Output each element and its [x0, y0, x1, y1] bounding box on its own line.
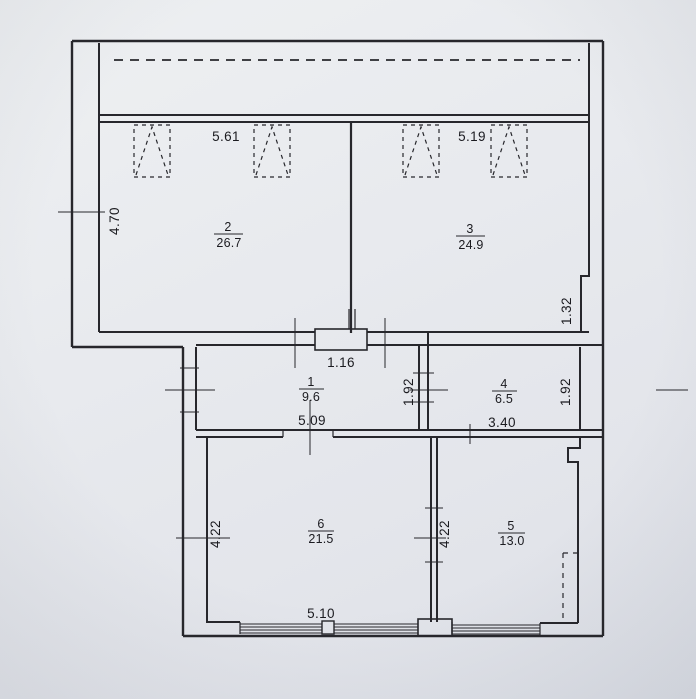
- dim-room2-height: 4.70: [107, 207, 122, 235]
- dim-room6-width: 5.10: [307, 606, 335, 621]
- dim-entry-opening: 1.16: [327, 355, 355, 370]
- room4-area: 6.5: [495, 392, 513, 406]
- room2-number: 2: [224, 220, 231, 234]
- room3-number: 3: [466, 222, 473, 236]
- room2-area: 26.7: [216, 236, 241, 250]
- dim-room3-width: 5.19: [458, 129, 486, 144]
- scanned-floorplan-page: 1 9.6 2 26.7 3 24.9 4 6.5 5 13.0 6 21.5 …: [0, 0, 696, 699]
- dim-room4-width: 3.40: [488, 415, 516, 430]
- dim-room4-height-left: 1.92: [401, 378, 416, 406]
- room5-area: 13.0: [499, 534, 524, 548]
- dim-room2-width: 5.61: [212, 129, 240, 144]
- dim-room5-height: 4.22: [437, 520, 452, 548]
- dim-room6-height: 4.22: [208, 520, 223, 548]
- room6-area: 21.5: [308, 532, 333, 546]
- floorplan-drawing: 1 9.6 2 26.7 3 24.9 4 6.5 5 13.0 6 21.5 …: [0, 0, 696, 699]
- dim-room4-height-right: 1.92: [558, 378, 573, 406]
- room4-number: 4: [500, 377, 507, 391]
- dim-room1-width: 5.09: [298, 413, 326, 428]
- dim-right-wall-upper: 1.32: [559, 297, 574, 325]
- room3-area: 24.9: [458, 238, 483, 252]
- room1-number: 1: [307, 375, 314, 389]
- room5-number: 5: [507, 519, 514, 533]
- room6-number: 6: [317, 517, 324, 531]
- room1-area: 9.6: [302, 390, 320, 404]
